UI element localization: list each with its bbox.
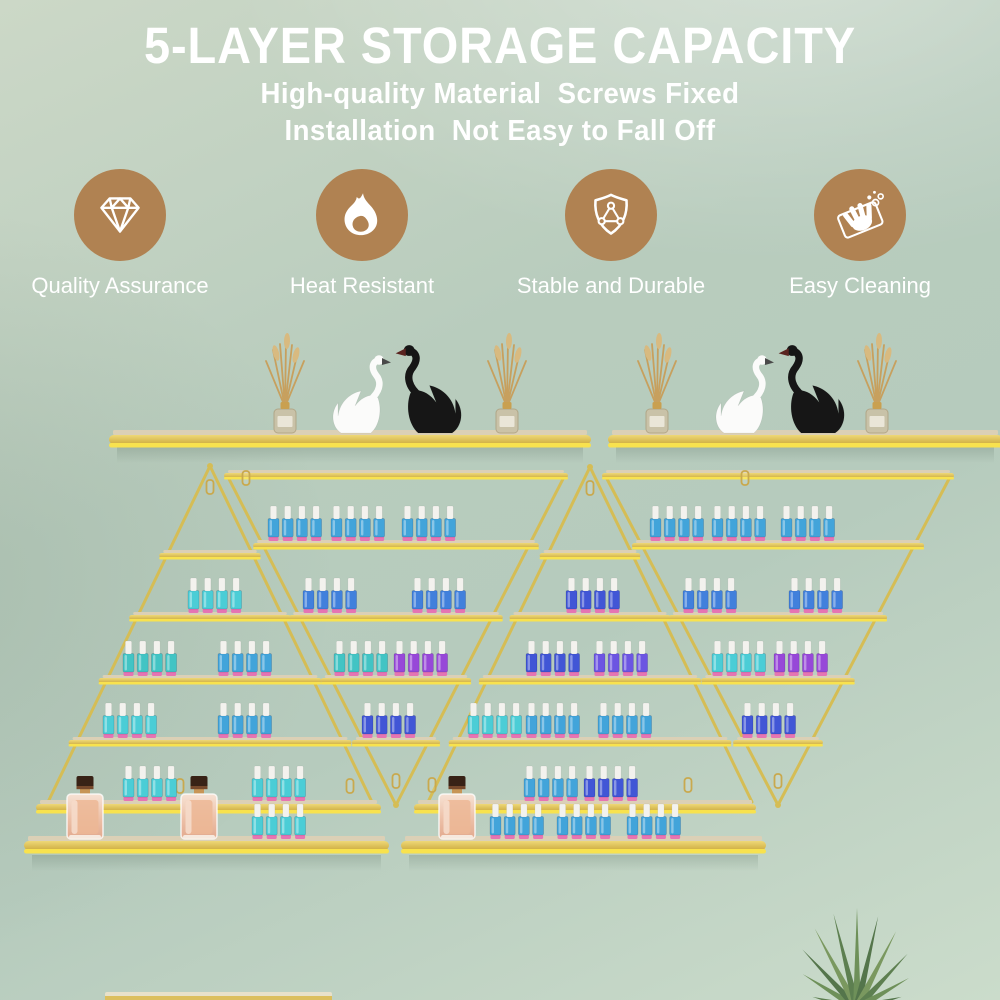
product-banner: 5-LAYER STORAGE CAPACITY High-quality Ma… [0,0,1000,1000]
bottle-cap [134,703,140,716]
bottle-cap [672,804,678,817]
bottle-highlight [713,592,715,608]
rack-shelf [321,675,471,685]
rack-shelf [69,737,352,747]
nail-polish-bottle [726,506,737,541]
bottle-highlight [442,592,444,608]
nail-polish-bottle [402,506,413,541]
bottle-highlight [758,717,760,733]
shelf-bright-edge [669,619,887,622]
bottle-cap [526,766,532,779]
nail-polish-bottle [376,703,387,738]
nail-polish-bottle [348,641,359,676]
bottle-highlight [600,780,602,796]
bottle-highlight [234,717,236,733]
bottle-highlight [601,818,603,834]
bottle-highlight [218,592,220,608]
bottle-cap [168,766,174,779]
nail-polish-bottle [809,506,820,541]
bottle-highlight [699,592,701,608]
nail-polish-bottle [123,766,134,801]
nail-polish-bottle [311,506,322,541]
rack-shelf-bottles [103,703,272,738]
rack-shelf-bottles [188,578,242,613]
nail-polish-bottle [202,578,213,613]
bottle-cap [404,506,410,519]
feature-label: Heat Resistant [237,273,487,299]
swan-beak [779,348,789,356]
bottle-highlight [234,655,236,671]
nail-polish-bottle [569,641,580,676]
bottle-cap [154,641,160,654]
rack-shelf [701,675,854,685]
bottle-cap [105,703,111,716]
perfume-highlight [186,800,192,834]
nail-polish-bottle [246,641,257,676]
nail-polish-bottle [803,578,814,613]
rack-shelf [289,612,503,622]
bottle-cap [443,578,449,591]
mounting-hook [429,778,436,792]
nail-polish-bottle [824,506,835,541]
rack-tip-joint [775,802,781,808]
nail-polish-bottle [231,578,242,613]
bottle-highlight [139,655,141,671]
bottle-cap [429,578,435,591]
bottle-highlight [364,655,366,671]
bottle-cap [285,506,291,519]
reed-diffuser [638,333,676,433]
nail-polish-bottle [609,578,620,613]
bottle-cap [299,506,305,519]
bottle-cap [639,641,645,654]
bottle-highlight [220,655,222,671]
nail-polish-bottle [405,703,416,738]
bottle-highlight [714,520,716,536]
rack-shelf [352,737,440,747]
bottle-cap [571,641,577,654]
nail-polish-bottle [394,641,405,676]
nail-polish-bottle [697,578,708,613]
mounting-hook [393,774,400,788]
bottle-cap [254,766,260,779]
mounting-hook [243,471,250,485]
nail-polish-bottle [788,641,799,676]
nail-polish-bottle [650,506,661,541]
nail-polish-bottle [295,766,306,801]
bottle-highlight [125,780,127,796]
nail-polish-bottle [218,703,229,738]
bottle-cap [535,804,541,817]
bottle-cap [249,641,255,654]
bottle-cap [334,578,340,591]
nail-polish-bottle [390,703,401,738]
bottle-cap [140,641,146,654]
bottle-highlight [254,818,256,834]
nail-polish-bottle [511,703,522,738]
perfume-base [441,835,473,839]
nail-polish-bottle [781,506,792,541]
nail-polish-bottle [566,578,577,613]
bottle-highlight [556,717,558,733]
bottle-highlight [333,592,335,608]
bottle-highlight [167,780,169,796]
bottle-cap [812,506,818,519]
bottle-cap [457,578,463,591]
bottle-highlight [629,818,631,834]
bottle-cap [602,804,608,817]
bottle-highlight [254,780,256,796]
bottle-cap [543,703,549,716]
bottle-cap [485,703,491,716]
bottle-highlight [600,717,602,733]
bottle-cap [305,578,311,591]
nail-polish-bottle [218,641,229,676]
bottle-highlight [685,592,687,608]
rack-shelf-bottles [468,703,652,738]
nail-polish-bottle [131,703,142,738]
bottle-highlight [153,780,155,796]
shelf-bright-edge [733,744,823,747]
perfume-highlight [444,800,450,834]
shelf-top-surface [73,737,348,740]
bottle-highlight [268,818,270,834]
perfume-highlight [72,800,78,834]
bottle-cap [611,578,617,591]
nail-polish-bottle [331,506,342,541]
nail-polish-bottle [524,766,535,801]
nail-polish-bottle [296,506,307,541]
bottle-cap [283,766,289,779]
bottle-cap [557,641,563,654]
nail-polish-bottle [770,703,781,738]
nail-polish-bottle [146,703,157,738]
bottle-cap [283,804,289,817]
nail-polish-bottle [216,578,227,613]
bottle-cap [569,766,575,779]
bottle-cap [629,766,635,779]
rack-strut [48,466,210,802]
perfume-cap-band [449,786,466,789]
bottle-cap [411,641,417,654]
nail-polish-bottle [711,578,722,613]
shelf-bright-edge [479,682,701,685]
bottle-cap [597,578,603,591]
bottle-highlight [657,818,659,834]
black-swan-figurine [396,345,462,433]
bottle-cap [714,578,720,591]
mounting-hook [177,779,184,793]
bottle-cap [439,641,445,654]
bottle-highlight [772,717,774,733]
bottle-highlight [742,655,744,671]
dried-wheat-plume [663,347,673,364]
nail-polish-bottle [137,641,148,676]
bottle-cap [700,578,706,591]
bottle-cap [447,506,453,519]
bottle-highlight [671,818,673,834]
bottle-highlight [570,717,572,733]
bottle-cap [743,506,749,519]
bottle-cap [791,578,797,591]
bottle-highlight [652,520,654,536]
bottle-cap [625,641,631,654]
nail-polish-bottle [612,766,623,801]
bottle-cap [571,703,577,716]
bottle-highlight [534,818,536,834]
bottle-cap [270,506,276,519]
rack-shelf-bottles [268,506,456,541]
bottle-cap [333,506,339,519]
bottle-highlight [438,655,440,671]
bottle-cap [714,506,720,519]
rack-shelf-bottles [650,506,835,541]
bottle-highlight [542,655,544,671]
nail-polish-bottle [622,641,633,676]
mounting-hook [587,481,594,495]
bottle-cap [834,578,840,591]
rack-tip-joint [393,802,399,808]
bottle-cap [611,641,617,654]
bottle-cap [269,766,275,779]
shelf-bright-edge [540,557,641,560]
bottle-cap [249,703,255,716]
bottle-cap [499,703,505,716]
bottle-highlight [105,717,107,733]
bottle-cap [125,766,131,779]
perfume-base [69,835,101,839]
rack-shelf [669,612,887,622]
bottle-cap [140,766,146,779]
rack-shelf [449,737,732,747]
nail-polish-bottle [612,703,623,738]
nail-polish-bottle [416,506,427,541]
bottle-cap [543,641,549,654]
dried-wheat-plume [284,333,291,349]
bottle-cap [574,804,580,817]
nail-polish-bottle [362,703,373,738]
rack-shelf [99,675,322,685]
nail-polish-bottle [232,703,243,738]
bottle-cap [729,506,735,519]
diffuser-label [870,416,885,427]
bottle-highlight [333,520,335,536]
bottle-cap [658,804,664,817]
shelf-bright-edge [224,477,568,480]
shelf-bright-edge [449,744,732,747]
bottle-cap [168,641,174,654]
bottle-cap [644,804,650,817]
shelf-top-surface [163,550,256,553]
rack-shelf [540,550,641,560]
bottle-highlight [319,592,321,608]
perfume-base [183,835,215,839]
bottle-highlight [424,655,426,671]
bottle-highlight [520,818,522,834]
nail-polish-bottle [103,703,114,738]
reed-diffuser [266,333,304,433]
shelf-gold-face [608,435,1000,444]
bottle-highlight [742,520,744,536]
bottle-cap [714,641,720,654]
bottle-cap [629,804,635,817]
bottle-highlight [470,717,472,733]
bottle-cap [798,506,804,519]
bottle-highlight [573,818,575,834]
cleaning-icon [814,169,906,261]
bottle-cap [685,578,691,591]
bottle-cap [419,506,425,519]
shelf-bright-edge [69,744,352,747]
bottle-cap [820,578,826,591]
shelf-top-surface [103,675,318,678]
nail-polish-bottle [712,506,723,541]
bottle-highlight [139,780,141,796]
bottle-cap [379,703,385,716]
shelf-gold-face [109,435,591,444]
nail-polish-bottle [726,578,737,613]
rack-shelf-bottles [303,578,466,613]
nail-polish-bottle [795,506,806,541]
shelf-top-surface [606,470,950,473]
shelf-bright-edge [701,682,854,685]
shelf-gold-face [401,841,766,850]
bottle-cap [744,703,750,716]
swan-beak [382,358,391,365]
bottle-cap [695,506,701,519]
nail-polish-bottle [445,506,456,541]
bottle-highlight [790,655,792,671]
bottle-highlight [378,655,380,671]
bottle-cap [219,578,225,591]
nail-polish-bottle [440,578,451,613]
bottle-highlight [298,520,300,536]
bottle-cap [190,578,196,591]
bottle-cap [220,641,226,654]
bottle-cap [414,578,420,591]
bottle-highlight [512,717,514,733]
nail-polish-bottle [540,703,551,738]
nail-polish-bottle [345,506,356,541]
rack-shelf-bottles [742,703,796,738]
rack-shelf-bottles [526,641,648,676]
bottle-highlight [540,780,542,796]
bottle-cap [297,766,303,779]
nail-polish-bottle [359,506,370,541]
product-display-photo [0,0,1000,1000]
diffuser-cap [873,402,882,409]
rack-strut [606,477,778,805]
feature-stable-durable: Stable and Durable [486,169,736,299]
cabinet-gold-trim [105,996,332,1000]
bottle-cap [586,766,592,779]
swan-neck [753,360,762,400]
bottle-cap [643,703,649,716]
bottle-highlight [282,818,284,834]
nail-polish-bottle [554,641,565,676]
bottle-highlight [392,717,394,733]
nail-polish-bottle [552,766,563,801]
bottle-cap [235,703,241,716]
bottle-highlight [568,592,570,608]
diffuser-label [650,416,665,427]
perfume-cap-band [191,786,208,789]
swan-neck [409,351,420,396]
nail-polish-bottle [627,766,638,801]
bottle-cap [826,506,832,519]
dried-wheat-plume [506,333,513,349]
bottle-highlight [680,520,682,536]
bottle-cap [787,703,793,716]
bottle-highlight [350,655,352,671]
nail-polish-bottle [282,506,293,541]
rack-shelf-bottles [712,641,828,676]
bottle-highlight [248,655,250,671]
white-swan-figurine [716,355,774,433]
rack-shelf-bottles [123,641,272,676]
nail-polish-bottle [817,641,828,676]
subtitle-line-1: High-quality Material Screws Fixed [25,78,975,111]
bottle-highlight [396,655,398,671]
bottle-cap [728,578,734,591]
bottle-cap [743,641,749,654]
bottle-cap [615,766,621,779]
nail-polish-bottle [584,766,595,801]
bottle-highlight [610,592,612,608]
nail-polish-bottle [817,578,828,613]
nail-polish-bottle [554,703,565,738]
rack-shelf-bottles [683,578,843,613]
bottle-highlight [628,780,630,796]
shelf-bright-edge [253,547,539,550]
bottle-cap [425,641,431,654]
bottle-highlight [756,520,758,536]
bottle-cap [379,641,385,654]
bottle-cap [588,804,594,817]
shelf-bright-edge [289,619,503,622]
nail-polish-bottle [151,766,162,801]
bottle-cap [759,703,765,716]
bottle-highlight [282,780,284,796]
perfume-cap-band [77,786,94,789]
nail-polish-bottle [426,578,437,613]
rack-top-bar [224,470,568,480]
bottle-highlight [714,655,716,671]
bottle-highlight [506,818,508,834]
bottle-highlight [446,520,448,536]
bottle-cap [806,578,812,591]
bottle-highlight [364,717,366,733]
bottle-cap [783,506,789,519]
bottle-cap [407,703,413,716]
dried-wheat-plume [883,347,893,364]
bottle-cap [393,703,399,716]
nail-polish-bottle [151,641,162,676]
bottle-highlight [805,592,807,608]
bottle-highlight [153,655,155,671]
nail-polish-bottle [664,506,675,541]
bottle-highlight [190,592,192,608]
dried-wheat-plume [513,347,523,364]
bottle-cap [148,703,154,716]
bottle-highlight [586,780,588,796]
bottle-cap [263,703,269,716]
shelf-wall-shadow [409,855,758,871]
bottle-highlight [638,655,640,671]
bottle-highlight [248,717,250,733]
dried-wheat-plume [656,333,663,349]
bottle-cap [757,641,763,654]
